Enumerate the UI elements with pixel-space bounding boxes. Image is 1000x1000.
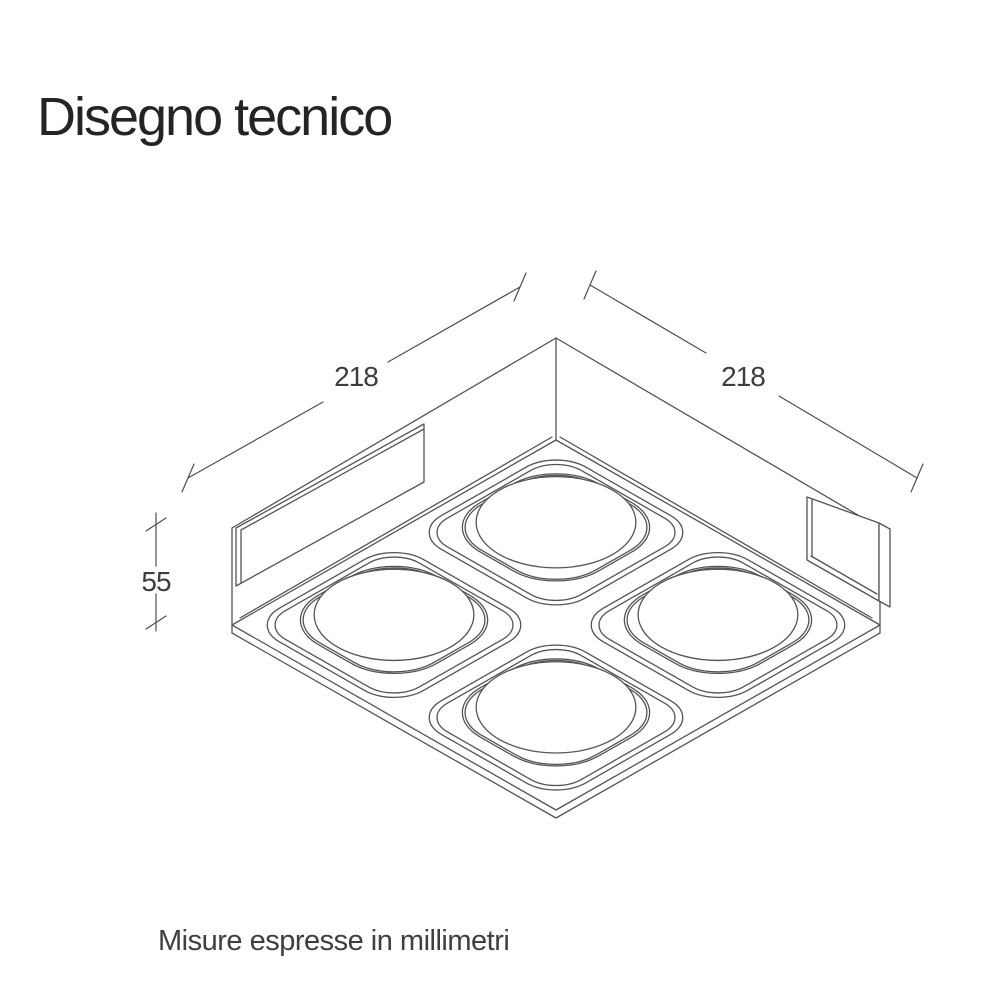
dim-label-height: 55 [141, 566, 171, 597]
lamp-circle [443, 458, 669, 587]
dimension-width-left: 218 [182, 273, 526, 492]
lamp-circle [281, 550, 507, 679]
spotlight-module [412, 635, 700, 800]
dim-label-width-right: 218 [721, 361, 765, 392]
page: Disegno tecnico [0, 0, 1000, 1000]
dimension-width-right: 218 [584, 271, 923, 492]
dim-label-width-left: 218 [334, 361, 378, 392]
dimension-height: 55 [141, 513, 171, 631]
footer-note: Misure espresse in millimetri [158, 925, 509, 958]
spotlight-modules [250, 450, 862, 800]
lamp-circle [605, 550, 831, 679]
technical-drawing: 218 218 55 [0, 0, 1000, 1000]
side-slot [236, 424, 424, 586]
lamp-circle [443, 643, 669, 772]
